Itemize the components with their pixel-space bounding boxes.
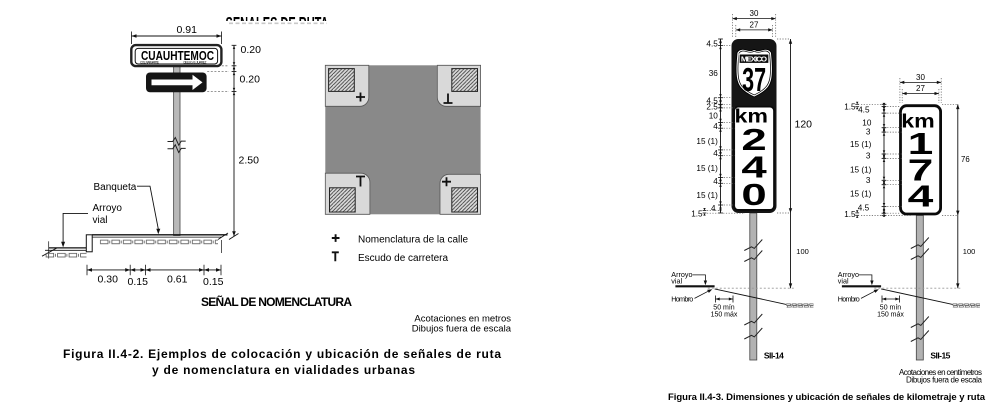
svg-text:15 (1): 15 (1) xyxy=(850,140,872,149)
svg-text:DELEG. B. JUAREZ: DELEG. B. JUAREZ xyxy=(184,61,207,65)
svg-text:4: 4 xyxy=(713,177,718,186)
svg-text:3: 3 xyxy=(866,152,871,161)
svg-text:SII-15: SII-15 xyxy=(930,351,950,361)
svg-text:4: 4 xyxy=(711,204,716,213)
svg-text:vial: vial xyxy=(93,215,108,226)
svg-text:4: 4 xyxy=(713,149,718,158)
svg-text:Nomenclatura de la calle: Nomenclatura de la calle xyxy=(358,234,468,245)
svg-text:100: 100 xyxy=(963,247,976,256)
svg-text:0.20: 0.20 xyxy=(240,73,261,85)
svg-text:4.5: 4.5 xyxy=(706,39,718,48)
svg-text:Figura II.4-2. Ejemplos de col: Figura II.4-2. Ejemplos de colocación y … xyxy=(63,347,501,361)
svg-text:15 (1): 15 (1) xyxy=(850,165,872,174)
svg-text:vial: vial xyxy=(838,277,849,286)
svg-text:3: 3 xyxy=(866,176,871,185)
svg-text:36: 36 xyxy=(709,69,719,78)
svg-text:150 máx: 150 máx xyxy=(877,312,904,319)
svg-text:0: 0 xyxy=(741,178,766,212)
svg-text:y de nomenclatura en vialidade: y de nomenclatura en vialidades urbanas xyxy=(152,363,415,377)
svg-text:0.20: 0.20 xyxy=(241,44,262,56)
svg-text:15 (1): 15 (1) xyxy=(696,137,718,146)
svg-text:4.5: 4.5 xyxy=(858,105,870,114)
svg-text:4: 4 xyxy=(908,179,934,214)
svg-text:15 (1): 15 (1) xyxy=(696,191,718,200)
svg-text:3: 3 xyxy=(866,127,871,136)
svg-text:30: 30 xyxy=(916,73,925,82)
svg-text:SEÑAL DE NOMENCLATURA: SEÑAL DE NOMENCLATURA xyxy=(201,294,352,309)
svg-text:Escudo de carretera: Escudo de carretera xyxy=(358,253,448,264)
svg-text:15 (1): 15 (1) xyxy=(850,190,872,199)
svg-text:0.30: 0.30 xyxy=(98,273,119,285)
svg-text:0.15: 0.15 xyxy=(203,276,224,288)
svg-text:76: 76 xyxy=(961,155,970,164)
svg-text:1.5: 1.5 xyxy=(691,210,703,219)
svg-text:50 mín: 50 mín xyxy=(880,304,902,311)
svg-text:27: 27 xyxy=(750,21,759,30)
svg-text:50 mín: 50 mín xyxy=(713,304,735,311)
svg-text:150 máx: 150 máx xyxy=(711,312,738,319)
svg-text:Dibujos fuera de escala: Dibujos fuera de escala xyxy=(906,375,983,384)
svg-text:15 (1): 15 (1) xyxy=(696,164,718,173)
svg-text:COL. NARVARTE: COL. NARVARTE xyxy=(140,61,159,65)
svg-text:1.5: 1.5 xyxy=(844,103,856,112)
svg-text:30: 30 xyxy=(750,9,759,18)
svg-text:Arroyo: Arroyo xyxy=(93,203,123,214)
svg-text:120: 120 xyxy=(795,119,813,131)
svg-text:0.91: 0.91 xyxy=(177,24,198,36)
svg-text:Hombro: Hombro xyxy=(671,295,693,304)
svg-text:Figura II.4-3. Dimensiones y u: Figura II.4-3. Dimensiones y ubicación d… xyxy=(668,392,986,403)
svg-text:37: 37 xyxy=(742,61,766,98)
svg-text:4: 4 xyxy=(713,122,718,131)
svg-text:2.50: 2.50 xyxy=(239,155,260,167)
svg-text:Dibujos fuera de escala: Dibujos fuera de escala xyxy=(412,324,512,335)
svg-text:27: 27 xyxy=(916,84,925,93)
svg-text:SII-14: SII-14 xyxy=(764,351,784,361)
svg-text:Hombro: Hombro xyxy=(838,295,860,304)
svg-text:0.61: 0.61 xyxy=(167,273,188,285)
svg-text:Banqueta: Banqueta xyxy=(94,182,137,193)
svg-text:2.5: 2.5 xyxy=(706,102,718,111)
svg-text:0.15: 0.15 xyxy=(128,276,149,288)
svg-text:4.5: 4.5 xyxy=(858,203,870,212)
svg-text:vial: vial xyxy=(671,277,682,286)
svg-text:100: 100 xyxy=(796,247,809,256)
svg-text:1.5: 1.5 xyxy=(844,210,856,219)
svg-text:10: 10 xyxy=(709,112,719,121)
svg-text:10: 10 xyxy=(862,118,872,127)
